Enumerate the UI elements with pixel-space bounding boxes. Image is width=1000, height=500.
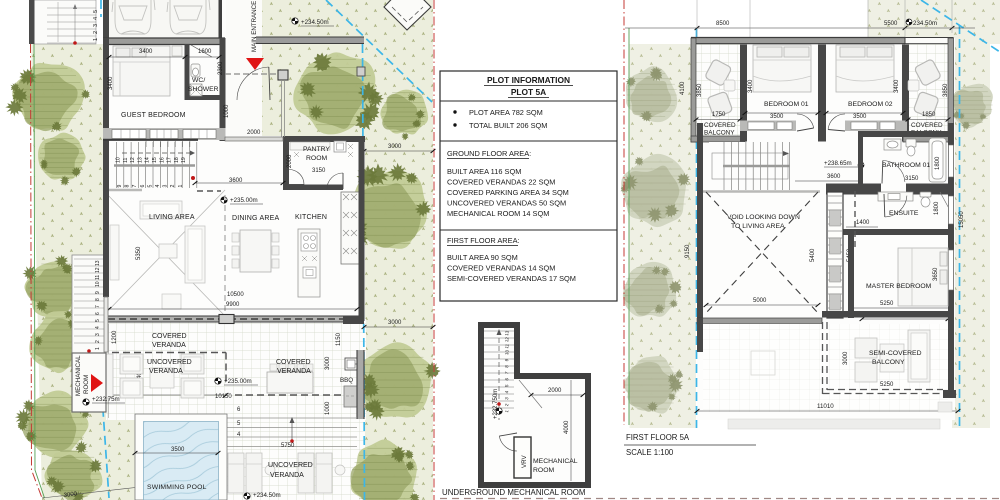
svg-text:4: 4 xyxy=(93,17,99,20)
svg-text:DINING AREA: DINING AREA xyxy=(232,215,279,222)
svg-text:8: 8 xyxy=(95,298,101,301)
svg-text:3000: 3000 xyxy=(388,320,402,326)
svg-text:+234.50m: +234.50m xyxy=(253,492,281,499)
svg-text:1750: 1750 xyxy=(712,112,726,118)
svg-text:3400: 3400 xyxy=(108,76,114,90)
svg-text:1850: 1850 xyxy=(922,112,936,118)
svg-text:1800: 1800 xyxy=(934,201,940,215)
svg-text:+235.00m: +235.00m xyxy=(224,378,252,385)
svg-text:+238.65m: +238.65m xyxy=(824,160,852,167)
svg-text:15050: 15050 xyxy=(959,211,965,228)
svg-text:2300: 2300 xyxy=(218,61,224,75)
svg-text:5: 5 xyxy=(93,10,99,13)
svg-text:5: 5 xyxy=(95,319,101,322)
svg-text:3000: 3000 xyxy=(325,356,331,370)
svg-text:1400: 1400 xyxy=(856,220,870,226)
svg-text:8500: 8500 xyxy=(716,21,730,27)
svg-text:COVERED: COVERED xyxy=(152,333,187,340)
svg-text:UNCOVERED VERANDAS 50 SQM: UNCOVERED VERANDAS 50 SQM xyxy=(447,199,566,208)
svg-text:PLOT 5A: PLOT 5A xyxy=(511,87,546,97)
svg-text:VERANDA: VERANDA xyxy=(270,472,304,479)
svg-text:11010: 11010 xyxy=(817,403,834,410)
svg-text:VRV: VRV xyxy=(521,455,528,468)
svg-text:7: 7 xyxy=(132,185,138,188)
svg-text:2: 2 xyxy=(95,340,101,343)
svg-text:MASTER BEDROOM: MASTER BEDROOM xyxy=(866,283,932,290)
svg-text:5000: 5000 xyxy=(753,298,767,304)
svg-text:10: 10 xyxy=(116,157,122,163)
svg-text:1000: 1000 xyxy=(325,401,331,415)
svg-text:1150: 1150 xyxy=(336,332,342,346)
svg-text:3000: 3000 xyxy=(843,351,849,365)
svg-text:5500: 5500 xyxy=(884,21,898,27)
svg-text:FIRST FLOOR 5A: FIRST FLOOR 5A xyxy=(626,433,690,442)
svg-text:PANTRY: PANTRY xyxy=(303,146,330,153)
svg-text:5750: 5750 xyxy=(281,443,295,449)
svg-text:1: 1 xyxy=(178,185,184,188)
svg-text:BBQ: BBQ xyxy=(340,377,353,384)
svg-text:2000: 2000 xyxy=(548,388,562,394)
svg-text:PLOT INFORMATION: PLOT INFORMATION xyxy=(487,75,570,85)
svg-text:GUEST BEDROOM: GUEST BEDROOM xyxy=(121,112,186,119)
svg-text:8: 8 xyxy=(125,185,131,188)
svg-text:3650: 3650 xyxy=(933,267,939,281)
svg-text:4: 4 xyxy=(155,185,161,188)
svg-text:COVERED PARKING AREA 34 SQM: COVERED PARKING AREA 34 SQM xyxy=(447,188,569,197)
svg-text:3850: 3850 xyxy=(943,83,949,97)
svg-text:COVERED VERANDAS 14 SQM: COVERED VERANDAS 14 SQM xyxy=(447,264,555,273)
svg-text:PLOT AREA 782 SQM: PLOT AREA 782 SQM xyxy=(469,108,543,117)
svg-text:3850: 3850 xyxy=(697,83,703,97)
svg-text:3150: 3150 xyxy=(312,168,326,174)
svg-text:18: 18 xyxy=(174,157,180,163)
svg-text:WC/: WC/ xyxy=(192,77,205,84)
svg-text:COVERED: COVERED xyxy=(276,359,311,366)
svg-text:TOTAL BUILT 206 SQM: TOTAL BUILT 206 SQM xyxy=(469,121,547,130)
svg-text:3500: 3500 xyxy=(770,114,784,120)
svg-text:COVERED VERANDAS 22 SQM: COVERED VERANDAS 22 SQM xyxy=(447,178,555,187)
svg-text:BEDROOM 01: BEDROOM 01 xyxy=(764,101,809,108)
svg-text:3000: 3000 xyxy=(388,144,402,150)
svg-text:3150: 3150 xyxy=(905,176,919,182)
svg-text:VOID LOOKING DOWN: VOID LOOKING DOWN xyxy=(727,214,800,221)
svg-text:SEMI-COVERED VERANDAS 17 SQM: SEMI-COVERED VERANDAS 17 SQM xyxy=(447,274,576,283)
svg-text:UNDERGROUND MECHANICAL ROOM: UNDERGROUND MECHANICAL ROOM xyxy=(442,488,586,497)
svg-text:TO LIVING AREA: TO LIVING AREA xyxy=(731,223,785,230)
svg-text:1200: 1200 xyxy=(112,330,118,344)
svg-text:ROOM: ROOM xyxy=(83,375,90,394)
svg-text:SCALE 1:100: SCALE 1:100 xyxy=(626,448,674,457)
svg-text:FIRST FLOOR AREA:: FIRST FLOOR AREA: xyxy=(447,236,520,245)
svg-text:SWIMMING POOL: SWIMMING POOL xyxy=(147,484,207,491)
svg-text:15: 15 xyxy=(152,157,158,163)
svg-text:BATHROOM 01: BATHROOM 01 xyxy=(882,162,930,169)
svg-text:2000: 2000 xyxy=(247,130,261,136)
svg-text:1800: 1800 xyxy=(935,156,941,170)
svg-text:+232.750m: +232.750m xyxy=(493,389,499,419)
svg-text:12: 12 xyxy=(130,157,136,163)
svg-text:BALCONY: BALCONY xyxy=(704,130,735,137)
svg-text:3400: 3400 xyxy=(748,79,754,93)
svg-text:COVERED: COVERED xyxy=(704,122,736,129)
svg-text:3500: 3500 xyxy=(853,114,867,120)
svg-text:3600: 3600 xyxy=(827,174,841,180)
svg-text:9900: 9900 xyxy=(226,302,240,308)
svg-text:BALCONY: BALCONY xyxy=(872,359,905,366)
svg-text:3400: 3400 xyxy=(894,79,900,93)
svg-text:+234.50m: +234.50m xyxy=(301,19,329,26)
svg-text:10: 10 xyxy=(95,281,101,287)
svg-text:3: 3 xyxy=(93,24,99,27)
svg-text:5: 5 xyxy=(147,185,153,188)
svg-text:ROOM: ROOM xyxy=(306,155,327,162)
svg-text:7: 7 xyxy=(95,305,101,308)
svg-text:14: 14 xyxy=(145,157,151,163)
svg-text:19: 19 xyxy=(181,157,187,163)
svg-text:3400: 3400 xyxy=(139,49,153,55)
svg-text:9: 9 xyxy=(117,185,123,188)
svg-text:COVERED: COVERED xyxy=(911,122,943,129)
svg-text:11: 11 xyxy=(95,275,101,280)
svg-text:13: 13 xyxy=(95,260,101,266)
svg-text:2: 2 xyxy=(93,31,99,34)
svg-text:GROUND FLOOR AREA:: GROUND FLOOR AREA: xyxy=(447,149,531,158)
svg-text:SEMI-COVERED: SEMI-COVERED xyxy=(869,350,922,357)
svg-text:UNCOVERED: UNCOVERED xyxy=(147,359,192,366)
svg-text:UNCOVERED: UNCOVERED xyxy=(268,462,313,469)
svg-text:3500: 3500 xyxy=(171,447,185,453)
svg-text:+232.75m: +232.75m xyxy=(92,396,120,403)
svg-text:LIVING AREA: LIVING AREA xyxy=(149,214,195,221)
svg-text:VERANDA: VERANDA xyxy=(149,368,183,375)
svg-text:BUILT AREA 90 SQM: BUILT AREA 90 SQM xyxy=(447,253,518,262)
svg-text:BEDROOM 02: BEDROOM 02 xyxy=(848,101,893,108)
svg-text:SHOWER: SHOWER xyxy=(188,86,219,93)
svg-text:16: 16 xyxy=(159,157,165,163)
svg-text:9: 9 xyxy=(95,291,101,294)
svg-text:4100: 4100 xyxy=(680,81,686,95)
svg-text:1: 1 xyxy=(95,347,101,350)
svg-text:2000: 2000 xyxy=(287,154,293,168)
svg-text:10500: 10500 xyxy=(227,292,244,298)
svg-text:KITCHEN: KITCHEN xyxy=(295,214,327,221)
svg-text:ROOM: ROOM xyxy=(533,467,554,474)
svg-text:3: 3 xyxy=(163,185,169,188)
svg-text:ENSUITE: ENSUITE xyxy=(889,210,919,217)
svg-text:5250: 5250 xyxy=(880,382,894,388)
svg-text:6: 6 xyxy=(140,185,146,188)
svg-text:5400: 5400 xyxy=(810,248,816,262)
svg-text:11: 11 xyxy=(123,158,129,163)
svg-text:9150: 9150 xyxy=(685,244,691,258)
svg-text:6: 6 xyxy=(95,312,101,315)
svg-text:MECHANICAL: MECHANICAL xyxy=(75,355,82,396)
svg-text:1: 1 xyxy=(93,38,99,41)
svg-text:BUILT AREA 116 SQM: BUILT AREA 116 SQM xyxy=(447,167,521,176)
svg-text:VERANDA: VERANDA xyxy=(152,342,186,349)
svg-text:5250: 5250 xyxy=(880,301,894,307)
svg-text:12: 12 xyxy=(95,267,101,273)
svg-text:234.50m: 234.50m xyxy=(913,20,937,27)
svg-text:MAIN ENTRANCE: MAIN ENTRANCE xyxy=(251,1,258,52)
svg-text:4: 4 xyxy=(95,326,101,329)
svg-text:17: 17 xyxy=(167,157,173,163)
svg-text:1000: 1000 xyxy=(224,104,230,118)
svg-text:3: 3 xyxy=(95,333,101,336)
svg-text:5350: 5350 xyxy=(136,246,142,260)
svg-text:MECHANICAL ROOM 14 SQM: MECHANICAL ROOM 14 SQM xyxy=(447,209,549,218)
svg-text:VERANDA: VERANDA xyxy=(277,368,311,375)
svg-text:+235.00m: +235.00m xyxy=(230,197,258,204)
svg-text:4000: 4000 xyxy=(564,420,570,434)
svg-text:2: 2 xyxy=(170,185,176,188)
svg-text:13: 13 xyxy=(137,157,143,163)
